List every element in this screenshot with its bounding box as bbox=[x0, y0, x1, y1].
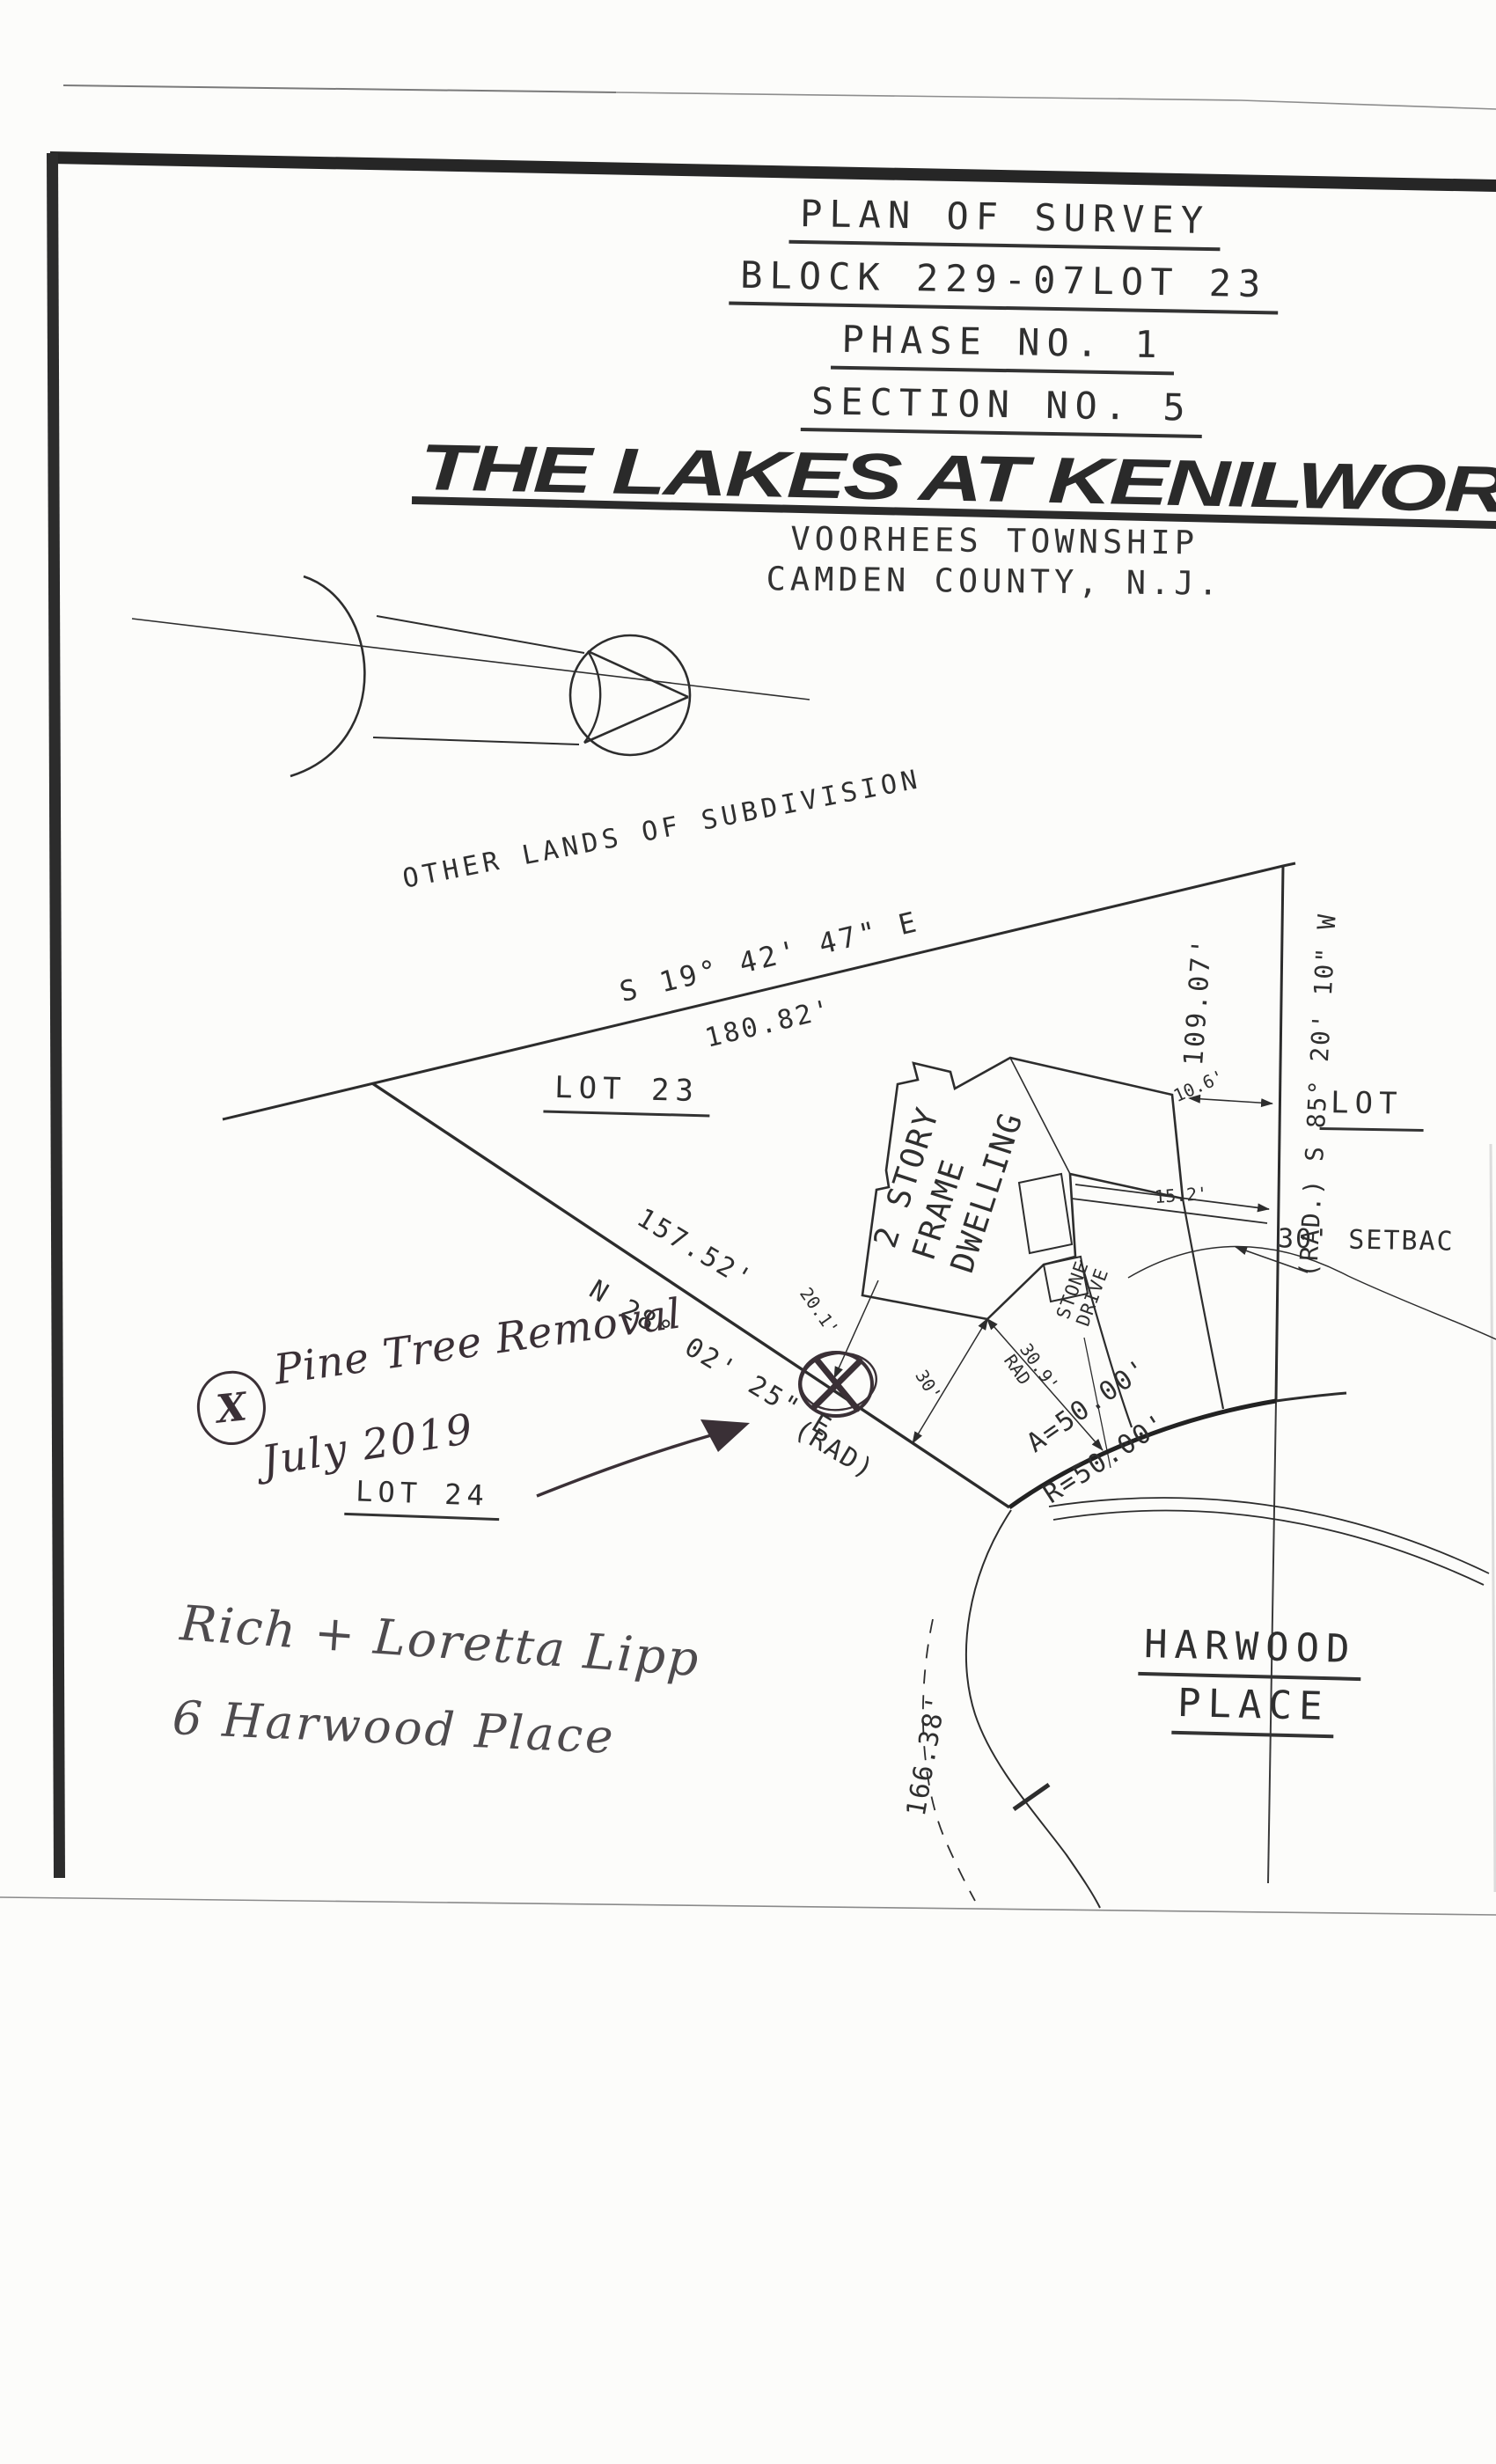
legend-x-mark: X bbox=[214, 1384, 248, 1432]
drive-edge-east bbox=[1183, 1199, 1223, 1409]
curb-arc-inner bbox=[1053, 1511, 1484, 1585]
boundary-east bbox=[1276, 866, 1283, 1401]
street-name-label: HARWOOD bbox=[1139, 1624, 1361, 1678]
phase-text: PHASE NO. 1 bbox=[831, 318, 1175, 376]
survey-scan-page: PLAN OF SURVEY BLOCK 229-07LOT 23 PHASE … bbox=[0, 0, 1496, 2464]
title-line-3: PHASE NO. 1 bbox=[703, 315, 1302, 378]
plan-of-survey-text: PLAN OF SURVEY bbox=[788, 192, 1221, 252]
sheet-border-left bbox=[47, 153, 65, 1878]
lot-partial-label: LOT bbox=[1320, 1086, 1424, 1131]
dim-15-2-label: 15.2' bbox=[1154, 1183, 1208, 1207]
lot-23-label: LOT 23 bbox=[544, 1072, 710, 1115]
section-text: SECTION NO. 5 bbox=[800, 379, 1203, 438]
lot-partial-text: LOT bbox=[1320, 1085, 1425, 1132]
garage-inset bbox=[1019, 1174, 1072, 1253]
street-place-label: PLACE bbox=[1172, 1683, 1334, 1736]
street-harwood-text: HARWOOD bbox=[1138, 1622, 1362, 1681]
scan-streak-top-right bbox=[616, 92, 1496, 109]
lot-24-text: LOT 24 bbox=[344, 1474, 500, 1521]
tie-10-6 bbox=[1190, 1098, 1272, 1104]
curb-arc-outer bbox=[1049, 1498, 1489, 1573]
title-line-4: SECTION NO. 5 bbox=[702, 378, 1302, 440]
scan-edge-shadow-right bbox=[1491, 1144, 1495, 1892]
street-place-text: PLACE bbox=[1171, 1681, 1335, 1738]
culdesac-arc-extension bbox=[1276, 1393, 1346, 1401]
north-arrow bbox=[132, 576, 810, 776]
scan-fold-line-bottom bbox=[0, 1897, 1496, 1915]
block-lot-text: BLOCK 229-07LOT 23 bbox=[730, 253, 1279, 315]
sheet-border-top bbox=[50, 151, 1496, 192]
scan-streak-top-left bbox=[63, 85, 616, 92]
hand-arrow bbox=[537, 1419, 750, 1496]
county-text: CAMDEN COUNTY, N.J. bbox=[722, 559, 1267, 605]
curve-tick bbox=[1014, 1785, 1049, 1809]
lot-24-label: LOT 24 bbox=[345, 1477, 500, 1518]
boundary-northwest bbox=[223, 863, 1295, 1119]
title-block: PLAN OF SURVEY BLOCK 229-07LOT 23 PHASE … bbox=[702, 190, 1305, 451]
title-line-2: BLOCK 229-07LOT 23 bbox=[704, 253, 1303, 315]
lot-23-text: LOT 23 bbox=[543, 1070, 710, 1118]
road-curve-166 bbox=[966, 1510, 1100, 1908]
location-block: VOORHEES TOWNSHIP CAMDEN COUNTY, N.J. bbox=[722, 518, 1268, 605]
setback-label: 30' SETBAC bbox=[1278, 1223, 1455, 1257]
township-text: VOORHEES TOWNSHIP bbox=[722, 518, 1267, 564]
title-line-1: PLAN OF SURVEY bbox=[706, 190, 1305, 253]
